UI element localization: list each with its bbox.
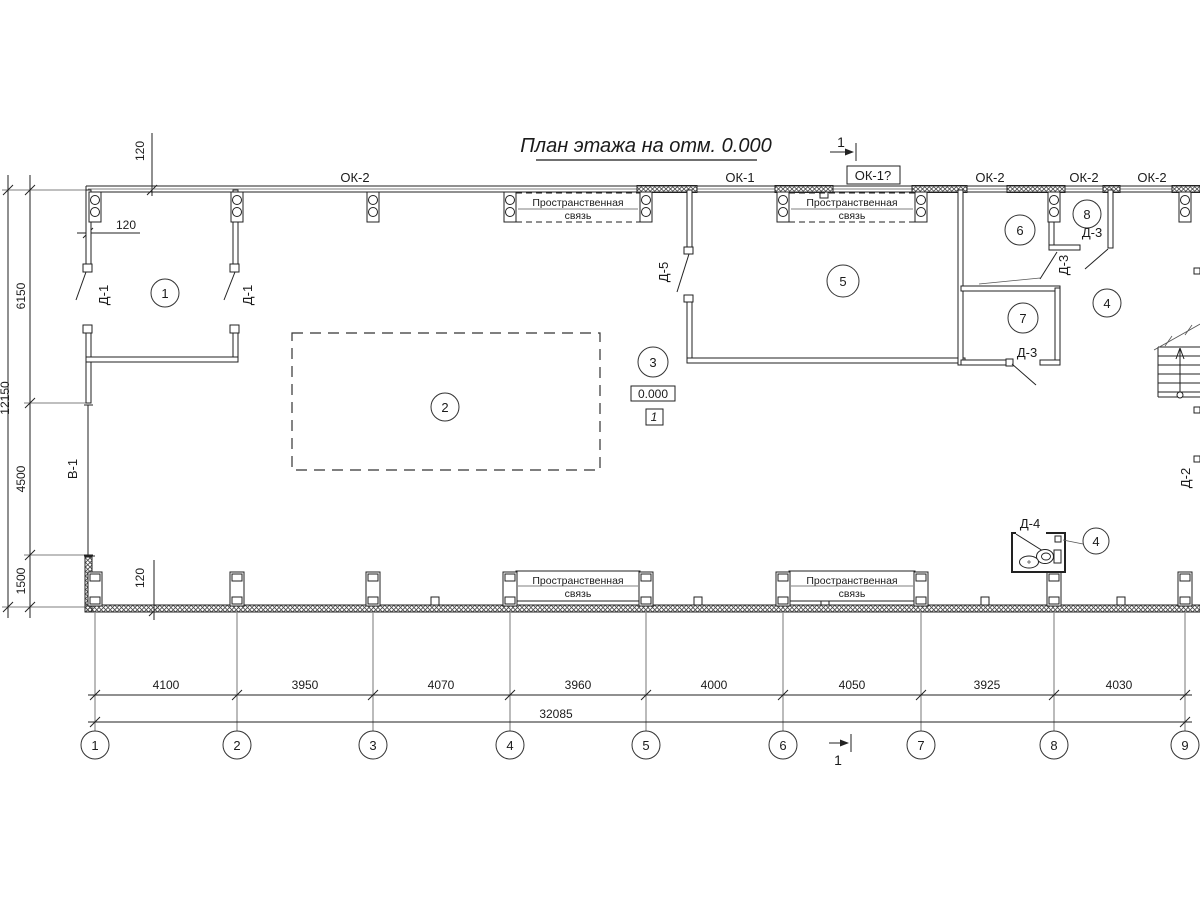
door-leaf-d3-room7: [1012, 364, 1036, 385]
tie-label: Пространственная: [806, 197, 897, 209]
tie-box-top-1: Пространственная связь: [516, 193, 640, 222]
dim-total: 32085: [539, 707, 573, 721]
axis-2: 2: [233, 738, 240, 753]
svg-text:2: 2: [441, 400, 448, 415]
window-label-ok1q-boxed: ОК-1?: [847, 166, 900, 184]
vent: [1055, 536, 1061, 542]
svg-text:1: 1: [837, 134, 845, 150]
section-mark-top: 1: [830, 134, 856, 161]
svg-text:5: 5: [839, 274, 846, 289]
svg-text:8: 8: [1083, 207, 1090, 222]
dim-4500: 4500: [14, 465, 28, 492]
door-label-d5: Д-5: [656, 262, 671, 282]
dim-3925: 3925: [974, 678, 1001, 692]
axis-6: 6: [779, 738, 786, 753]
dim-3960: 3960: [565, 678, 592, 692]
door-leaf-d3-room8: [1085, 249, 1108, 269]
room7-walls: [961, 286, 1060, 385]
room-bubble-1: 1: [151, 279, 179, 307]
door-label-d3: Д-3: [1056, 255, 1071, 275]
axis-3: 3: [369, 738, 376, 753]
door-leaf-d5: [677, 254, 689, 292]
dim-4050: 4050: [839, 678, 866, 692]
drawing-canvas: 4100 3950 4070 3960 4000 4050 3925 4030 …: [0, 0, 1200, 900]
dim-4100: 4100: [153, 678, 180, 692]
door-label-d1: Д-1: [96, 285, 111, 305]
dim-3950: 3950: [292, 678, 319, 692]
tie-label: связь: [839, 210, 866, 222]
axis-5: 5: [642, 738, 649, 753]
svg-text:120: 120: [133, 568, 147, 588]
door-label-d3: Д-3: [1017, 345, 1037, 360]
left-dimension-line: 6150 4500 1500 12150: [0, 175, 35, 618]
wc-room: [1012, 530, 1083, 572]
tie-label: Пространственная: [532, 575, 623, 587]
door-leaf-d1-right: [224, 272, 235, 300]
window-label-ok2: ОК-2: [975, 170, 1004, 185]
room-bubble-5: 5: [827, 265, 859, 297]
gate-v1: [84, 405, 93, 555]
bottom-dimension-line: 4100 3950 4070 3960 4000 4050 3925 4030 …: [88, 678, 1192, 727]
tie-label: Пространственная: [532, 197, 623, 209]
tie-box-top-2: Пространственная связь: [789, 193, 915, 222]
svg-text:1: 1: [834, 752, 842, 768]
axis-9: 9: [1181, 738, 1188, 753]
tie-box-bottom-2: Пространственная связь: [789, 571, 915, 601]
stairs: [1154, 323, 1200, 398]
tie-label: Пространственная: [806, 575, 897, 587]
svg-text:6: 6: [1016, 223, 1023, 238]
columns-bottom: [88, 572, 1192, 606]
grid-axis-bubbles: 1 2 3 4 5 6 7 8 9: [81, 731, 1199, 759]
svg-text:120: 120: [116, 218, 136, 232]
dim-120-top-vertical: 120: [133, 133, 157, 196]
zone-mark: 1: [646, 409, 663, 425]
svg-text:0.000: 0.000: [638, 387, 668, 401]
tie-label: связь: [565, 588, 592, 600]
axis-7: 7: [917, 738, 924, 753]
svg-text:120: 120: [133, 141, 147, 161]
toilet-icon: [1037, 550, 1062, 564]
grid-extension-lines: [2, 190, 1185, 731]
stair-direction-arrow: [1176, 348, 1184, 398]
gate-label-v1: В-1: [65, 459, 80, 479]
drawing-title: План этажа на отм. 0.000: [520, 135, 771, 157]
door-label-d2: Д-2: [1178, 468, 1193, 488]
room-bubble-4-upper: 4: [1093, 289, 1121, 317]
dim-4000: 4000: [701, 678, 728, 692]
room-bubble-6: 6: [1005, 215, 1035, 245]
window-label-ok2: ОК-2: [1069, 170, 1098, 185]
window-label-ok2: ОК-2: [340, 170, 369, 185]
svg-text:ОК-1?: ОК-1?: [855, 168, 891, 183]
axis-8: 8: [1050, 738, 1057, 753]
floor-plan-drawing: 4100 3950 4070 3960 4000 4050 3925 4030 …: [0, 0, 1200, 900]
svg-text:4: 4: [1092, 534, 1099, 549]
tie-box-bottom-1: Пространственная связь: [516, 571, 640, 601]
svg-text:4: 4: [1103, 296, 1110, 311]
room-bubble-2: 2: [431, 393, 459, 421]
svg-text:1: 1: [161, 286, 168, 301]
room-bubble-7: 7: [1008, 303, 1038, 333]
dim-4070: 4070: [428, 678, 455, 692]
svg-text:7: 7: [1019, 311, 1026, 326]
door-leaf-d1-left: [76, 272, 86, 300]
svg-text:1: 1: [651, 410, 658, 424]
door-leader-line: [979, 278, 1040, 284]
room-bubble-8: 8: [1073, 200, 1101, 228]
tie-label: связь: [565, 210, 592, 222]
dim-4030: 4030: [1106, 678, 1133, 692]
svg-text:3: 3: [649, 355, 656, 370]
stair-break-line: [1154, 323, 1200, 350]
axis-1: 1: [91, 738, 98, 753]
section-mark-bottom: 1: [829, 734, 851, 768]
room-bubble-3: 3: [638, 347, 668, 377]
door-label-d4: Д-4: [1020, 516, 1040, 531]
tie-label: связь: [839, 588, 866, 600]
dim-1500: 1500: [14, 567, 28, 594]
dim-6150: 6150: [14, 282, 28, 309]
window-label-ok1: ОК-1: [725, 170, 754, 185]
door-label-d1: Д-1: [240, 285, 255, 305]
elevation-mark: 0.000: [631, 386, 675, 401]
door-leaf-d3-mid: [1040, 252, 1057, 279]
window-label-ok2: ОК-2: [1137, 170, 1166, 185]
sink-icon: [1020, 556, 1039, 568]
dim-12150: 12150: [0, 381, 12, 415]
axis-4: 4: [506, 738, 513, 753]
room-bubble-4-wc: 4: [1083, 528, 1109, 554]
